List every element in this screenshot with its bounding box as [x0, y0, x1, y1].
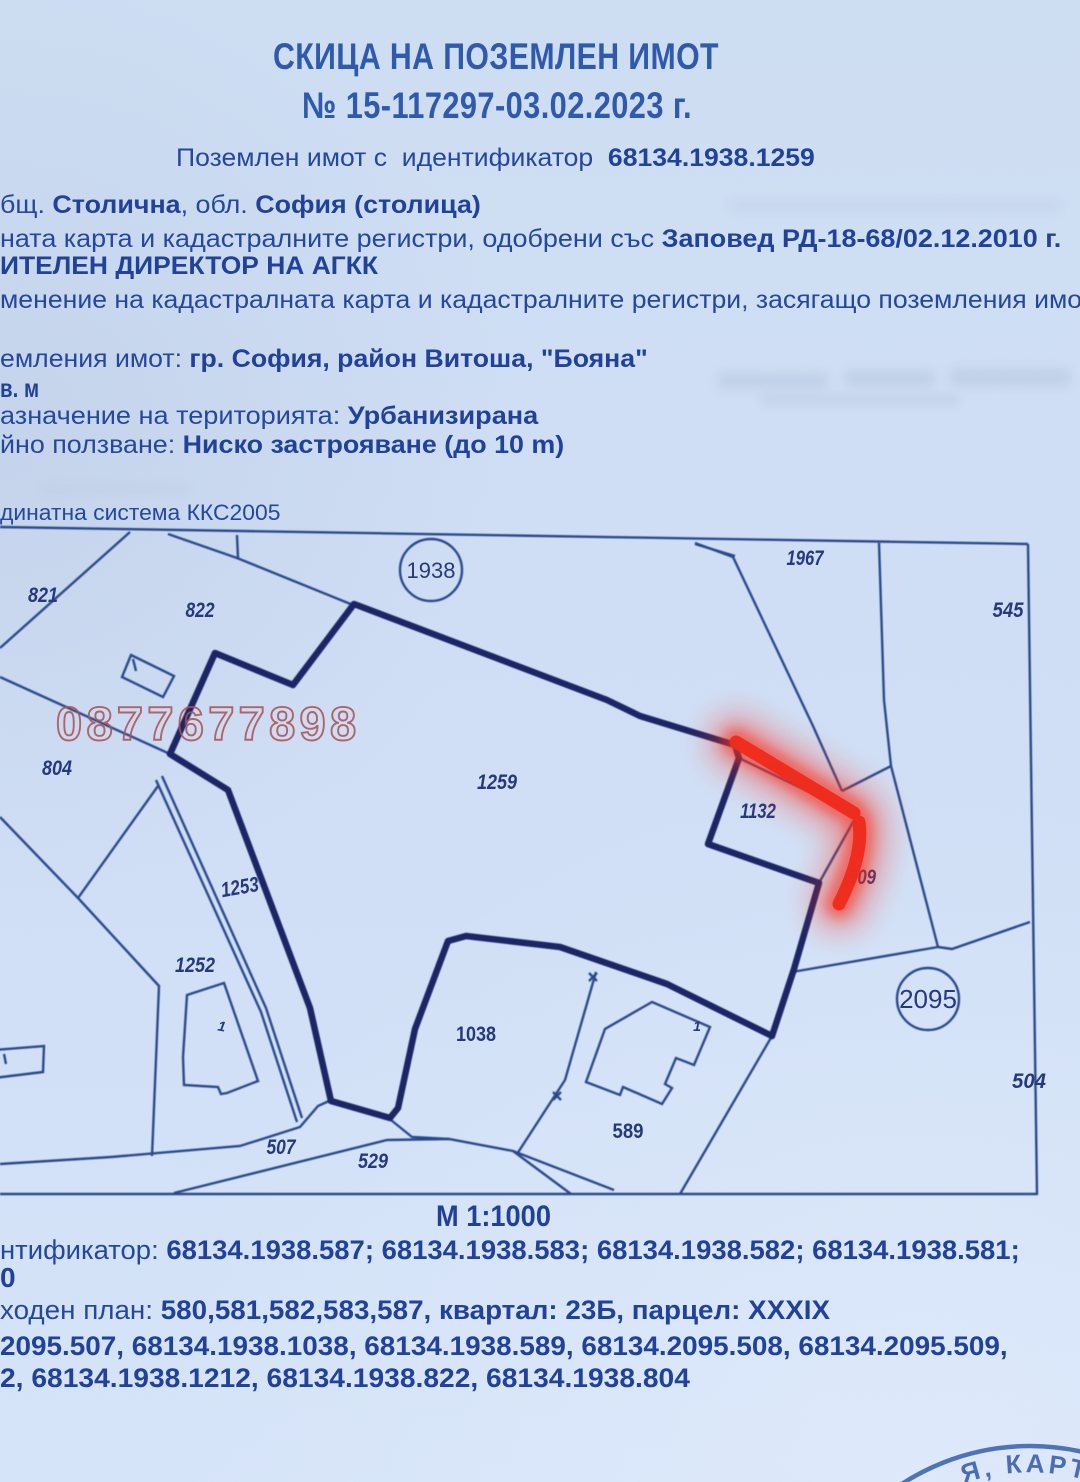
svg-text:804: 804 — [42, 757, 72, 781]
svg-text:821: 821 — [28, 584, 58, 608]
svg-text:1038: 1038 — [456, 1023, 496, 1047]
svg-text:504: 504 — [1012, 1070, 1046, 1093]
svg-text:545: 545 — [992, 599, 1024, 622]
svg-text:822: 822 — [185, 600, 214, 623]
svg-text:1132: 1132 — [740, 800, 776, 823]
svg-text:0877677898: 0877677898 — [56, 697, 360, 750]
svg-text:529: 529 — [358, 1150, 388, 1174]
svg-text:1252: 1252 — [175, 954, 215, 978]
svg-text:507: 507 — [266, 1137, 296, 1160]
svg-text:589: 589 — [612, 1120, 643, 1143]
svg-text:1938: 1938 — [407, 558, 456, 583]
svg-text:1259: 1259 — [477, 771, 517, 795]
svg-text:1967: 1967 — [786, 547, 824, 570]
svg-text:1: 1 — [693, 1018, 701, 1034]
svg-text:2095: 2095 — [899, 984, 957, 1014]
